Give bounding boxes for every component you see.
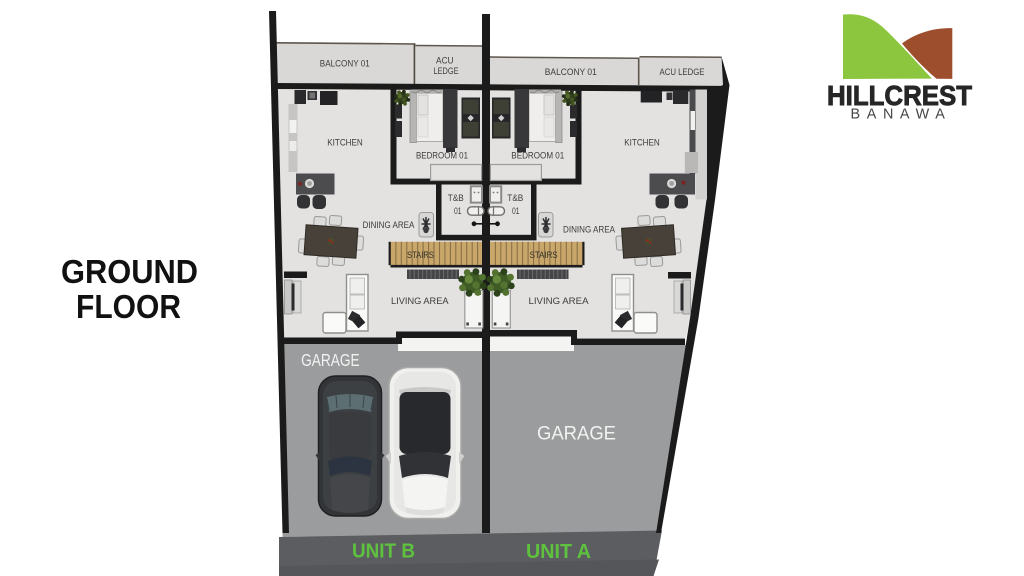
svg-text:BALCONY 01: BALCONY 01: [320, 59, 370, 69]
svg-text:T&B: T&B: [448, 193, 464, 203]
svg-text:ACU: ACU: [436, 56, 454, 66]
svg-text:LIVING AREA: LIVING AREA: [529, 296, 590, 306]
svg-text:UNIT B: UNIT B: [352, 541, 415, 563]
svg-text:LEDGE: LEDGE: [434, 66, 459, 76]
svg-text:DINING AREA: DINING AREA: [563, 225, 616, 235]
svg-text:STAIRS: STAIRS: [530, 250, 558, 260]
svg-text:GROUND: GROUND: [61, 253, 198, 290]
svg-text:LIVING AREA: LIVING AREA: [391, 296, 449, 306]
svg-text:T&B: T&B: [507, 193, 523, 203]
svg-text:UNIT A: UNIT A: [526, 541, 591, 563]
svg-text:BEDROOM 01: BEDROOM 01: [511, 150, 564, 160]
svg-text:STAIRS: STAIRS: [407, 250, 434, 260]
svg-text:01: 01: [454, 206, 462, 216]
svg-text:DINING AREA: DINING AREA: [363, 220, 415, 230]
svg-text:ACU LEDGE: ACU LEDGE: [660, 67, 705, 77]
svg-text:GARAGE: GARAGE: [537, 423, 616, 445]
svg-text:KITCHEN: KITCHEN: [327, 137, 363, 147]
svg-text:BEDROOM 01: BEDROOM 01: [416, 150, 468, 160]
svg-text:BALCONY 01: BALCONY 01: [545, 67, 597, 77]
svg-text:01: 01: [512, 206, 520, 216]
svg-text:FLOOR: FLOOR: [76, 288, 181, 325]
svg-text:KITCHEN: KITCHEN: [624, 137, 660, 147]
svg-text:BANAWA: BANAWA: [851, 107, 952, 123]
svg-text:GARAGE: GARAGE: [301, 350, 360, 370]
